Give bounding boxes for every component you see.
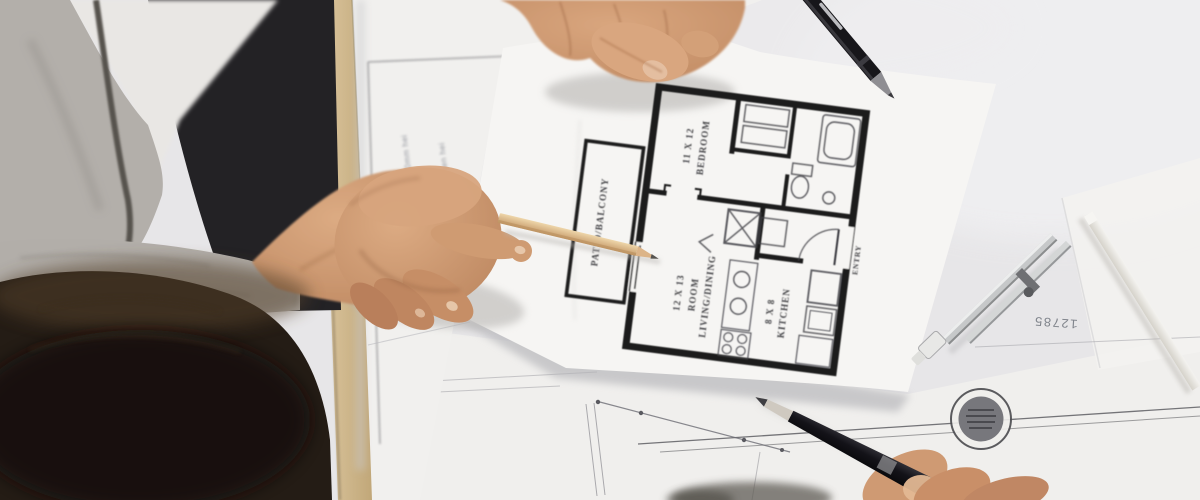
dimension-dot bbox=[780, 448, 784, 452]
handwritten-number: 12785 bbox=[1033, 313, 1078, 331]
dimension-dot bbox=[742, 438, 746, 442]
detail-bubble-stamp bbox=[951, 389, 1011, 449]
interior-wall bbox=[645, 191, 664, 193]
photo-canvas: 12785 300mm hei gotten hei bbox=[0, 0, 1200, 500]
dimension-dot bbox=[639, 411, 643, 415]
person-hair bbox=[0, 260, 332, 500]
dimension-dot bbox=[596, 400, 600, 404]
photo-scene: 12785 300mm hei gotten hei bbox=[0, 0, 1200, 500]
hair-highlight bbox=[0, 260, 310, 332]
stamp-core bbox=[959, 397, 1004, 442]
